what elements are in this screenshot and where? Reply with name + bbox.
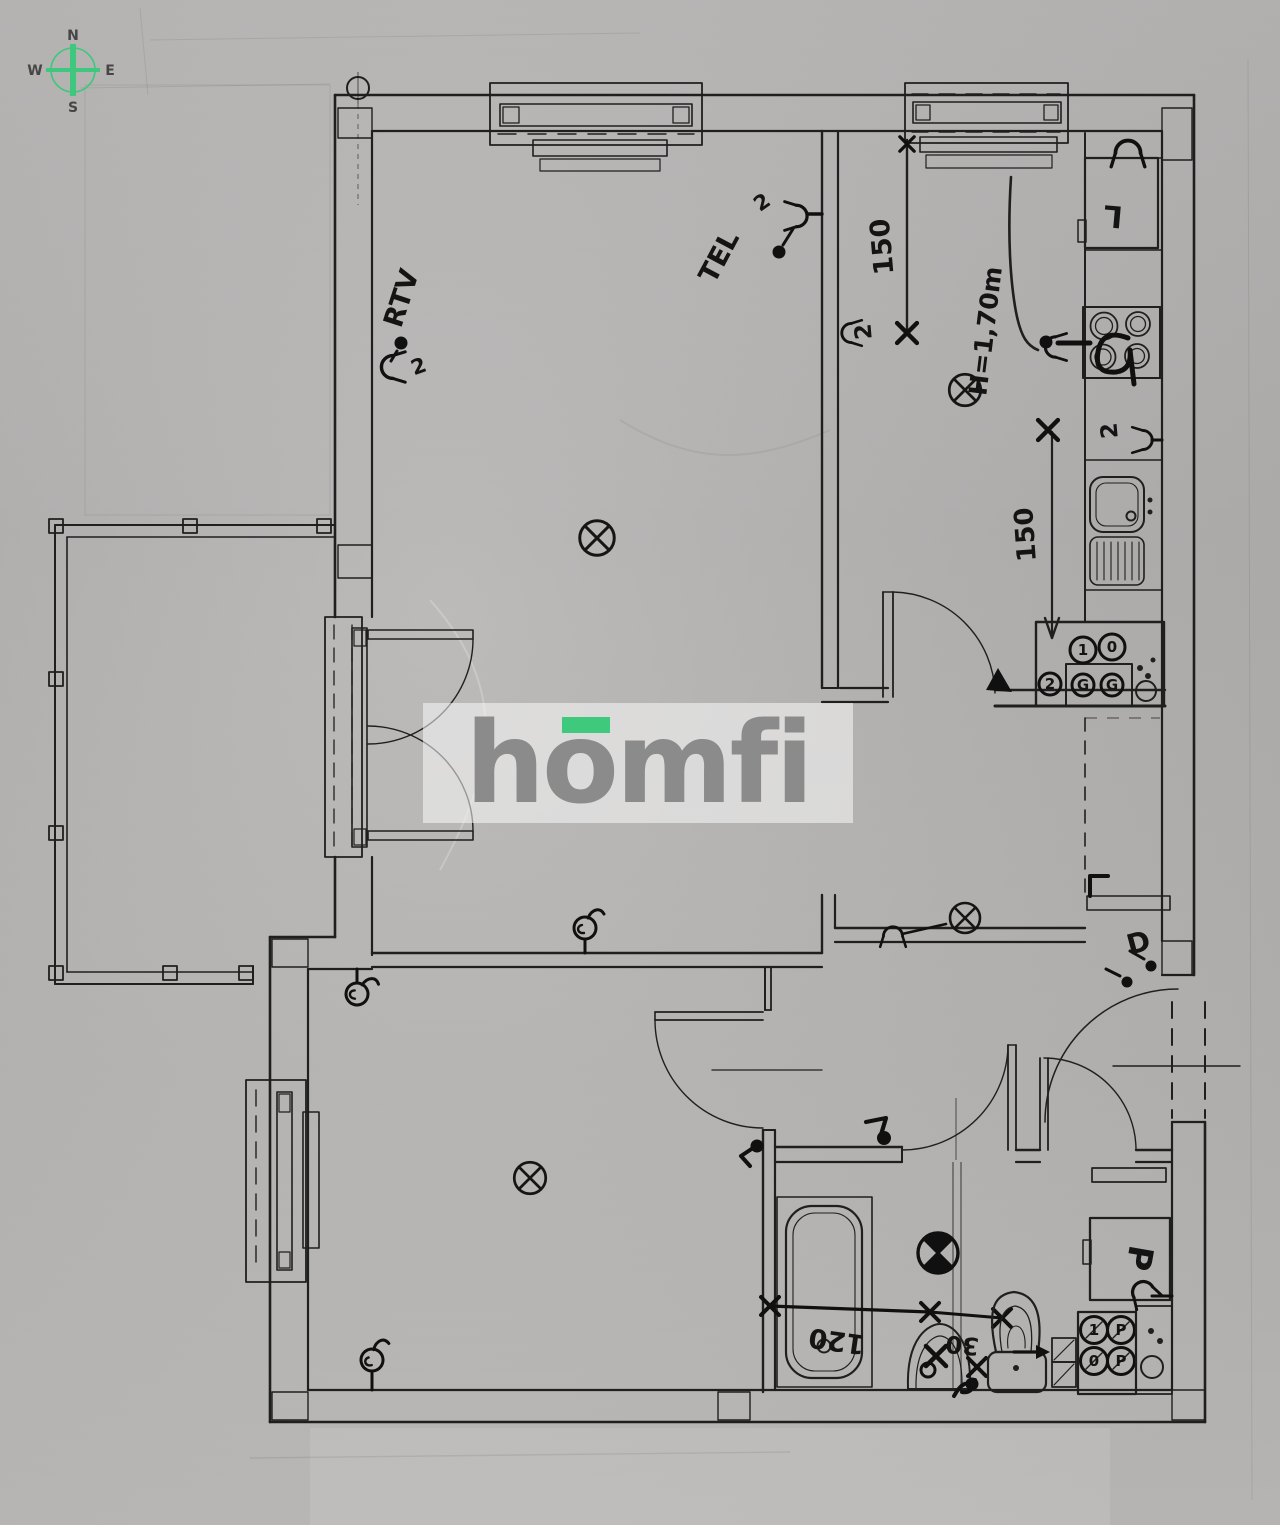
- kitchen-meter-label-0: 0: [1107, 638, 1117, 656]
- wc-meter-label-1: 1: [1089, 1321, 1099, 1339]
- kitchen-meter-label-g2: G: [1106, 676, 1118, 694]
- compass-west-label: W: [27, 63, 42, 79]
- fridge-label: L: [1102, 197, 1124, 234]
- wc-meter-label-p2: P: [1116, 1352, 1127, 1370]
- kitchen-wall-socket-count: 2: [850, 322, 877, 340]
- basin-dimension-label: 30: [944, 1330, 980, 1361]
- entry-light-point-icon: [1146, 961, 1157, 972]
- wc-meter-label-0: 0: [1089, 1352, 1099, 1370]
- kitchen-window-dim-label: 150: [865, 217, 901, 276]
- floor-plan-scan: N S W E: [0, 0, 1280, 1525]
- compass-south-label: S: [68, 100, 78, 116]
- homfi-logo: homfi: [423, 699, 853, 829]
- kitchen-meter-label-1: 1: [1078, 641, 1088, 659]
- tel-point-icon: [773, 246, 786, 259]
- logo-wordmark: homfi: [465, 699, 811, 829]
- kitchen-meter-label-2: 2: [1045, 675, 1055, 693]
- wc-meter-label-p1: P: [1116, 1321, 1127, 1339]
- doorbell-point-icon: [1122, 977, 1133, 988]
- kitchen-counter-dim-label: 150: [1009, 506, 1043, 562]
- floor-plan-canvas: N S W E: [0, 0, 1280, 1525]
- compass-north-label: N: [67, 28, 79, 44]
- compass-east-label: E: [105, 63, 115, 79]
- kitchen-meter-label-g1: G: [1077, 676, 1089, 694]
- rtv-point-icon: [395, 337, 408, 350]
- kitchen-counter-socket-count: 2: [1096, 421, 1123, 439]
